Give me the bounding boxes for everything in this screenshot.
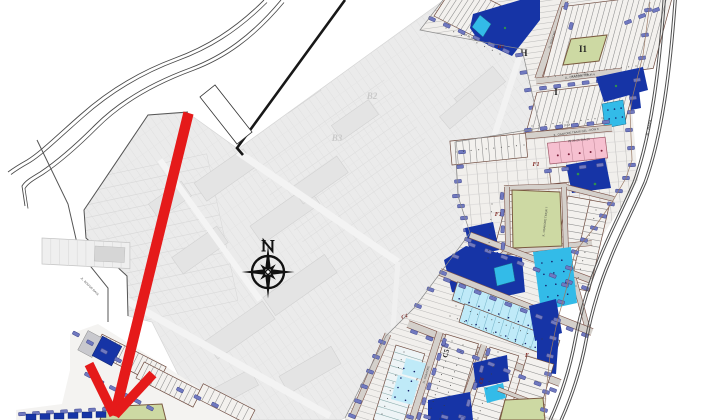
- svg-text:I1: I1: [579, 44, 588, 54]
- svg-text:I: I: [554, 87, 558, 97]
- svg-text:B2: B2: [366, 91, 378, 101]
- svg-text:F1: F1: [532, 162, 539, 168]
- svg-text:B3: B3: [331, 133, 343, 143]
